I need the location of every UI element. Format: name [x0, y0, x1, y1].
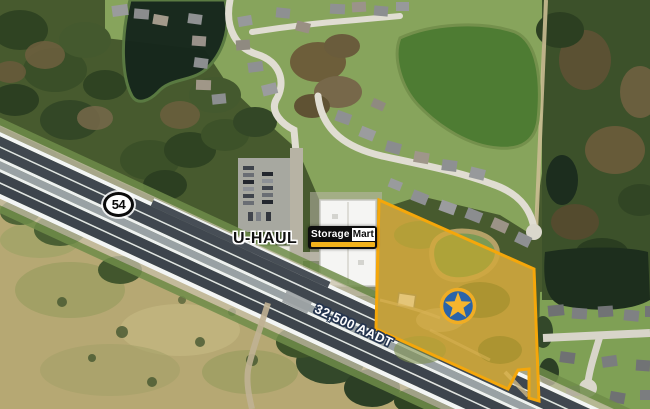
- storagemart-logo-mart: Mart: [352, 228, 375, 241]
- route-54-shield: 54: [103, 192, 134, 217]
- subject-property-marker: [442, 290, 475, 323]
- storagemart-logo-yellow-bar: [311, 242, 375, 247]
- storagemart-logo-storage: Storage: [311, 228, 352, 241]
- uhaul-label: U-HAUL: [233, 230, 297, 248]
- storagemart-logo: Storage Mart: [308, 226, 377, 249]
- route-54-number: 54: [112, 197, 125, 212]
- aerial-basemap: [0, 0, 650, 409]
- aerial-map: 54 U-HAUL Storage Mart 32,500 AADT: [0, 0, 650, 409]
